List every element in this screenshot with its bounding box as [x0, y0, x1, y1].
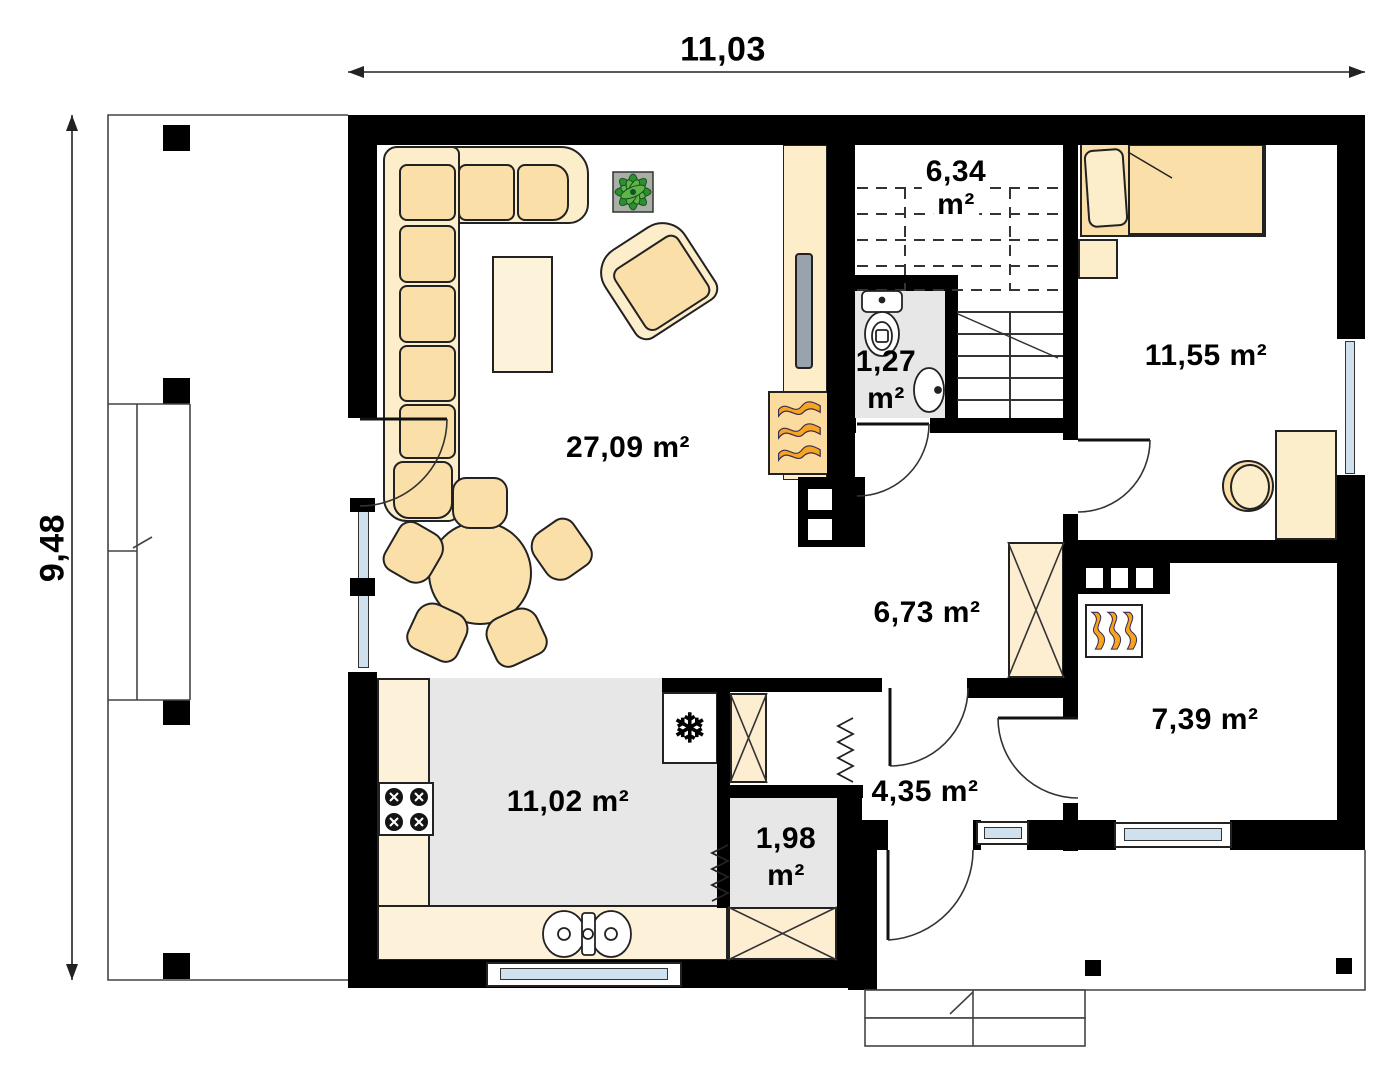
kitchen-window-glass	[500, 968, 668, 980]
nightstand	[1078, 239, 1118, 279]
terrace-column	[163, 125, 190, 151]
chimney-flue	[808, 519, 832, 540]
armchair	[589, 211, 723, 345]
bedroom-area-label: 11,55 m²	[1145, 339, 1267, 373]
wall-wc-jamb	[848, 418, 856, 433]
sofa-cushion	[399, 285, 456, 343]
desk-chair-back	[1230, 464, 1270, 510]
staircase-area-label: 6,34	[922, 155, 990, 189]
wall-kitchen-hall	[717, 678, 882, 692]
sofa-cushion	[399, 345, 456, 402]
hall-area-label: 6,73 m²	[874, 596, 981, 630]
floor-plan: ❄	[0, 0, 1398, 1080]
entry-door-swing	[888, 850, 973, 940]
pillow	[1083, 148, 1128, 229]
kitchen-counter-bottom	[377, 905, 728, 961]
chimney-flue	[1136, 568, 1153, 588]
wall-stair-bottom	[930, 418, 1078, 433]
boiler-door-swing	[998, 718, 1078, 798]
wc-door-swing	[857, 424, 929, 496]
sofa-cushion	[399, 404, 456, 459]
dining-chair	[524, 512, 599, 588]
wall-exterior-right	[1337, 115, 1365, 339]
chimney-flue	[1111, 568, 1128, 588]
sofa-end-seat	[393, 461, 453, 519]
sofa-cushion	[399, 225, 456, 283]
dimension-width-label: 11,03	[680, 31, 766, 70]
living-window-mullion	[350, 498, 375, 512]
armchair-cushion	[609, 231, 714, 335]
boiler	[1085, 604, 1143, 658]
pantry-area-unit: m²	[767, 859, 805, 893]
wall-pantry-right	[837, 785, 862, 961]
wardrobe	[728, 907, 837, 960]
porch-column	[1336, 958, 1352, 974]
wardrobe	[730, 693, 767, 783]
terrace-column	[163, 378, 190, 404]
terrace-column	[163, 953, 190, 979]
living-window-mullion	[350, 578, 375, 596]
sofa-cushion	[458, 164, 515, 221]
bedroom-window	[1345, 341, 1355, 474]
desk	[1275, 430, 1337, 540]
blanket	[1128, 144, 1264, 235]
wall-bedroom-bottom	[1078, 540, 1365, 563]
terrace-outline	[108, 115, 348, 980]
boiler-window-glass	[1124, 828, 1222, 841]
bedroom-door-swing	[1078, 440, 1150, 512]
entry-area-label: 4,35 m²	[872, 775, 979, 809]
plant-icon	[613, 172, 653, 212]
chimney-flue	[1086, 568, 1103, 588]
stove	[378, 782, 434, 836]
fireplace	[768, 391, 829, 475]
tv	[795, 253, 813, 369]
wall-wc-right	[945, 275, 958, 432]
snowflake-icon: ❄	[673, 706, 707, 752]
living-area-label: 27,09 m²	[566, 431, 690, 465]
sofa-cushion	[399, 164, 456, 221]
wall-exterior-top	[348, 115, 1365, 145]
kitchen-area-label: 11,02 m²	[507, 785, 629, 819]
wall-kitchen-hall	[967, 678, 1078, 698]
pantry-area-label: 1,98	[756, 822, 816, 856]
sofa-cushion	[517, 164, 569, 221]
wall-wc-top	[848, 275, 958, 291]
chimney-flue	[808, 489, 832, 510]
boiler-area-label: 7,39 m²	[1152, 703, 1259, 737]
dining-chair	[452, 477, 508, 529]
wardrobe	[1008, 542, 1064, 678]
wall-exterior-left	[348, 115, 377, 418]
staircase-area-unit: m²	[933, 188, 979, 222]
wc-area-unit: m²	[867, 382, 905, 416]
porch-column	[1085, 960, 1101, 976]
terrace-column	[163, 700, 190, 725]
wall-exterior-left	[348, 672, 377, 962]
wall-bedroom-left	[1063, 803, 1078, 851]
dimension-height-label: 9,48	[34, 514, 73, 582]
hall-door-swing	[890, 688, 968, 766]
wall-bedroom-left	[1063, 115, 1078, 440]
entry-sidelight-glass	[984, 827, 1022, 839]
porch-outline	[865, 850, 1365, 1046]
coffee-table	[492, 256, 553, 373]
wc-area-label: 1,27	[856, 345, 916, 379]
wall-exterior-right	[1337, 475, 1365, 850]
wall-fridge-stub	[662, 678, 718, 692]
